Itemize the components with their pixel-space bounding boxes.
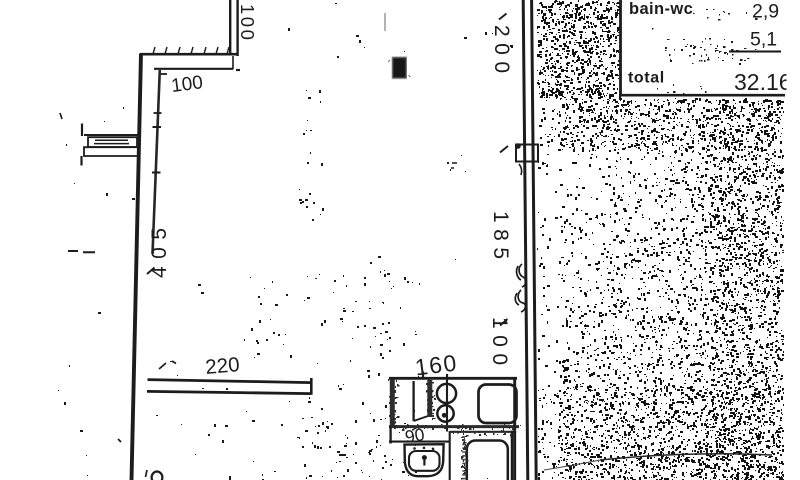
svg-text:bain-wc: bain-wc xyxy=(629,0,693,18)
svg-text:100: 100 xyxy=(237,4,258,42)
svg-text:160: 160 xyxy=(413,349,459,380)
svg-text:220: 220 xyxy=(204,353,240,379)
svg-text:5,1: 5,1 xyxy=(750,29,777,51)
svg-text:185: 185 xyxy=(489,211,512,266)
svg-text:405: 405 xyxy=(148,220,171,278)
svg-text:200: 200 xyxy=(490,25,513,80)
svg-text:32.16: 32.16 xyxy=(734,69,792,95)
svg-text:2,9: 2,9 xyxy=(752,1,779,23)
svg-text:100: 100 xyxy=(488,317,511,372)
svg-text:100: 100 xyxy=(170,72,204,97)
svg-text:total: total xyxy=(628,70,665,87)
